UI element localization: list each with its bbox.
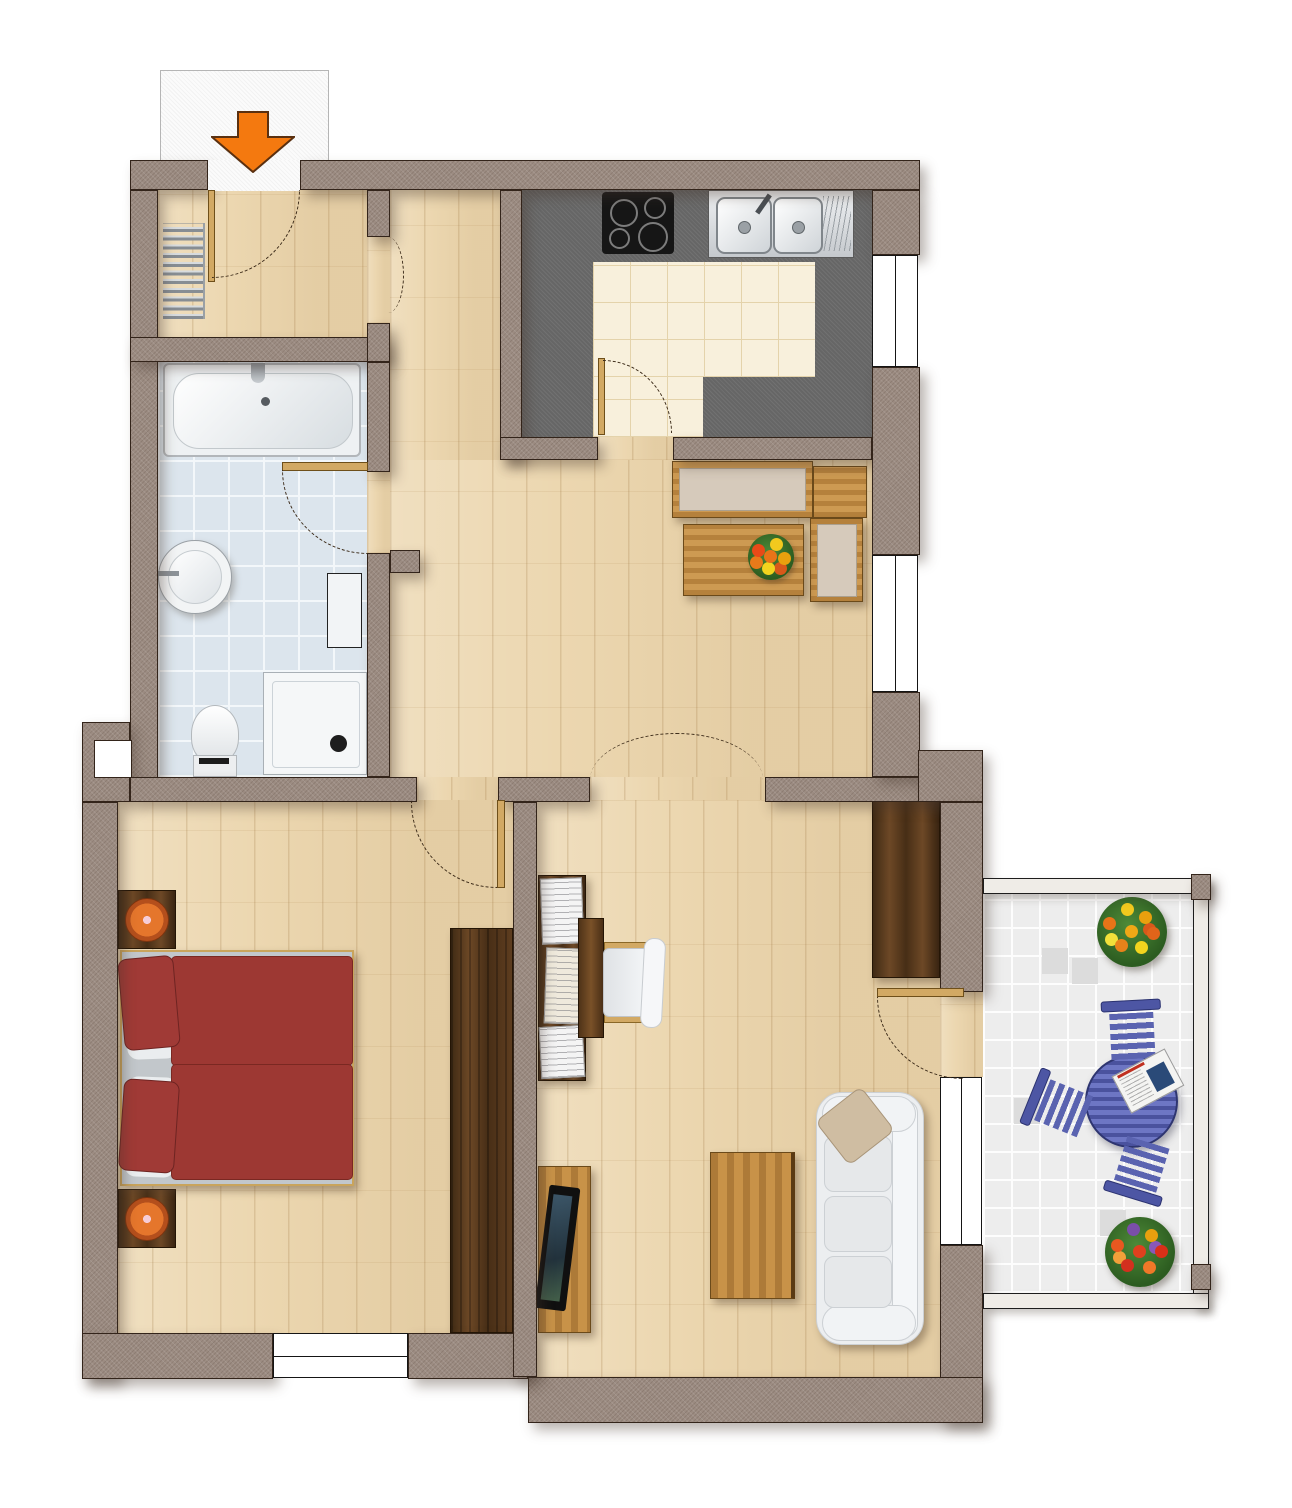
dining-corner-unit [813,466,867,518]
nightstand-lamp [125,1197,169,1241]
wall-right-low [872,692,920,777]
shower-tray-line [272,681,360,768]
balcony-post-top [1191,874,1211,900]
bedroom-door [497,800,505,888]
sofa-backrest [892,1100,918,1337]
dining-window [872,555,918,692]
window-divider [895,256,896,366]
kitchen-window [872,255,918,367]
sink-drain [738,221,751,234]
sofa [816,1092,924,1345]
sofa-cushion [824,1196,892,1252]
wall-top-main [300,160,920,190]
floor-plan [0,0,1292,1508]
bed-pillow-red-bottom [118,1078,180,1174]
chair-backrest [640,937,667,1028]
chair-seat [1109,1012,1155,1060]
bed-duvet-top-half [171,956,353,1066]
sofa-armrest-bottom [822,1305,916,1341]
shower-drain [330,735,347,752]
wall-hall-bathroom [130,337,390,362]
kitchen-doorway-floor [598,437,673,460]
sideboard [872,800,940,978]
burner [644,197,666,219]
wall-bedroom-bottom-right [408,1333,528,1379]
wall-hall-right-upper [367,190,390,237]
toilet-seat-line [199,758,229,764]
wall-living-right-upper [940,802,983,992]
bathroom-cabinet [327,573,362,648]
wall-left-lower [82,802,118,1379]
kitchen-tile-floor-a [593,262,815,377]
sink-bowl-right [773,197,823,254]
bench-cushion [817,524,857,597]
wall-hall-living [765,777,940,802]
bathtub-drain [261,397,270,406]
flower [1125,925,1138,938]
balcony-chair-top [1101,998,1164,1059]
wall-niche [94,740,132,778]
wall-bathroom-right-lower [367,553,390,777]
balcony-post-bottom [1191,1264,1211,1290]
balcony-flowerpot-top [1097,897,1167,967]
double-bed [120,950,354,1186]
wall-right-mid [872,367,920,555]
wall-hall-right-lower [367,323,390,362]
balcony-railing-bottom [983,1293,1209,1309]
coffee-table [710,1152,795,1299]
living-window [940,1077,982,1245]
desk-chair [602,940,664,1024]
bathroom-sink [158,540,232,614]
wall-kitchen-bottom-left [500,437,598,460]
wall-kitchen-bottom-right [673,437,872,460]
sink-basin [168,550,222,604]
wall-bedroom-top [130,777,417,802]
wall-left-upper [130,190,158,780]
wall-bedroom-living-divider [513,802,537,1377]
wall-right-step [918,750,983,802]
balcony-flowerpot-bottom [1105,1217,1175,1287]
sofa-cushion [824,1256,892,1308]
wall-corridor-stub [390,550,420,573]
wall-bedroom-top-right [498,777,590,802]
balcony-door [877,988,964,997]
window-divider [274,1356,407,1357]
balcony-accent-tile [1042,948,1068,974]
table-flowers [748,534,794,580]
chair-backrest [1101,998,1161,1012]
bedroom-doorway-floor [417,777,498,802]
wall-bathroom-right-upper [367,362,390,472]
bedroom-window [273,1333,408,1378]
bench-cushion [679,468,806,511]
wall-living-bottom [528,1377,983,1423]
wall-bedroom-bottom-left [82,1333,273,1379]
burner [610,199,638,227]
toilet [189,705,239,777]
bathtub-faucet-icon [251,363,265,383]
living-opening-floor [590,777,765,802]
kitchen-sink-unit [708,190,854,258]
hall-doorway-floor [367,237,390,323]
window-divider [895,556,896,691]
cooktop [602,192,674,254]
burner [609,228,630,249]
window-divider [961,1078,962,1244]
shower [263,672,367,775]
balcony-railing-top [983,878,1209,894]
radiator [163,223,205,319]
flower [764,550,777,563]
bathtub [163,363,361,457]
bed-duvet-bottom-half [171,1064,353,1180]
wall-top-left [130,160,208,190]
dining-bench-right [810,518,863,602]
bathtub-basin [173,373,353,449]
desk [578,918,604,1038]
balcony-accent-tile [1072,958,1098,984]
sink-drainboard [823,196,851,251]
wall-kitchen-left [500,190,522,460]
wardrobe [450,928,513,1333]
wall-right-top [872,190,920,255]
entrance-arrow-icon [211,111,295,173]
balcony-railing-right [1193,878,1209,1309]
sink-drain [792,221,805,234]
burner [638,222,668,252]
dining-bench-top [672,461,813,518]
nightstand-lamp [125,898,169,942]
bathroom-doorway-floor [367,472,390,553]
flower [1133,1245,1146,1258]
bed-pillow-red-top [117,955,181,1052]
